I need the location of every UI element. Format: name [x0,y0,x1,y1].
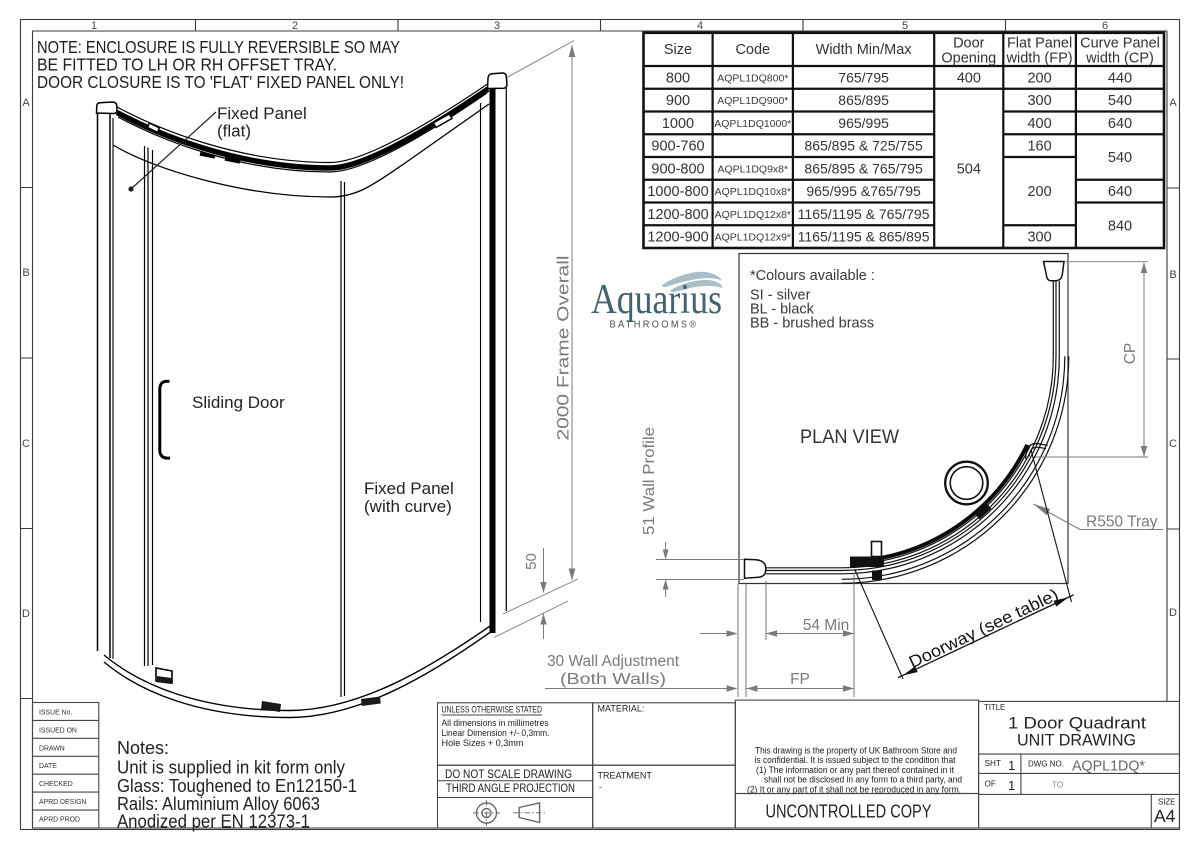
svg-text:Curve Panel: Curve Panel [1080,36,1160,52]
svg-text:TREATMENT: TREATMENT [598,771,653,781]
svg-text:MATERIAL:: MATERIAL: [598,704,645,714]
svg-text:1000-800: 1000-800 [647,184,708,200]
svg-text:800: 800 [666,70,690,86]
svg-text:840: 840 [1108,218,1132,234]
svg-text:OF: OF [985,780,996,789]
svg-text:51 Wall Profile: 51 Wall Profile [641,427,658,535]
svg-text:ISSUED ON: ISSUED ON [39,727,77,734]
svg-text:2: 2 [292,20,298,32]
svg-text:UNCONTROLLED COPY: UNCONTROLLED COPY [766,801,932,822]
svg-text:SHT: SHT [985,759,1001,768]
svg-text:A4: A4 [1154,806,1176,826]
svg-text:CHECKED: CHECKED [39,781,73,788]
svg-text:3: 3 [494,20,500,32]
svg-text:AQPL1DQ900*: AQPL1DQ900* [717,95,788,107]
svg-text:CP: CP [1122,343,1139,365]
svg-text:DATE: DATE [39,763,57,770]
svg-text:APRD DESIGN: APRD DESIGN [39,799,87,806]
svg-text:AQPL1DQ12x8*: AQPL1DQ12x8* [715,209,791,221]
svg-text:1200-800: 1200-800 [647,207,708,223]
svg-text:B: B [1169,269,1176,281]
svg-text:TO: TO [1052,779,1064,789]
svg-text:Fixed Panel: Fixed Panel [217,104,307,123]
svg-text:300: 300 [1027,93,1051,109]
svg-text:(1) The information or any par: (1) The information or any part thereof … [756,765,954,775]
svg-text:5: 5 [902,20,908,32]
svg-text:FP: FP [790,671,810,688]
svg-text:B: B [22,267,29,279]
svg-text:C: C [22,438,30,450]
svg-text:AQPL1DQ1000*: AQPL1DQ1000* [714,118,791,130]
svg-text:UNIT DRAWING: UNIT DRAWING [1017,732,1136,750]
svg-text:ISSUE No.: ISSUE No. [39,710,72,717]
svg-text:(with curve): (with curve) [364,497,452,516]
svg-text:1165/1195 & 865/895: 1165/1195 & 865/895 [798,229,930,245]
svg-text:Flat Panel: Flat Panel [1007,36,1072,52]
svg-text:width (FP): width (FP) [1006,51,1073,67]
svg-text:BB - brushed brass: BB - brushed brass [750,316,874,332]
svg-text:640: 640 [1108,184,1132,200]
svg-text:160: 160 [1027,139,1051,155]
svg-text:400: 400 [957,70,981,86]
svg-text:(Both Walls): (Both Walls) [560,671,666,688]
svg-text:200: 200 [1027,70,1051,86]
svg-text:1: 1 [1008,758,1015,773]
svg-text:1165/1195 & 765/795: 1165/1195 & 765/795 [798,206,930,222]
svg-text:D: D [22,608,30,620]
svg-text:AQPL1DQ800*: AQPL1DQ800* [717,72,788,84]
svg-text:6: 6 [1102,20,1108,32]
svg-text:DRAWN: DRAWN [39,745,65,752]
svg-text:4: 4 [697,20,703,32]
svg-text:Unit is supplied in kit form o: Unit is supplied in kit form only [117,758,345,778]
svg-text:900: 900 [666,93,690,109]
svg-text:540: 540 [1108,150,1132,166]
svg-text:AQPL1DQ12x9*: AQPL1DQ12x9* [715,232,791,244]
svg-text:2000 Frame Overall: 2000 Frame Overall [555,256,573,441]
svg-text:900-760: 900-760 [651,139,704,155]
svg-text:Anodized per EN 12373-1: Anodized per EN 12373-1 [117,812,310,832]
svg-text:765/795: 765/795 [838,69,889,85]
svg-text:(flat): (flat) [217,122,251,141]
svg-text:504: 504 [957,161,981,177]
svg-text:Linear Dimension +/- 0,3mm.: Linear Dimension +/- 0,3mm. [442,728,550,738]
svg-text:Fixed Panel: Fixed Panel [364,479,454,498]
svg-text:R550 Tray: R550 Tray [1086,514,1158,531]
svg-text:BATHROOMS®: BATHROOMS® [610,319,699,331]
svg-text:A: A [22,97,30,109]
svg-text:Width Min/Max: Width Min/Max [816,42,913,58]
svg-text:DWG NO.: DWG NO. [1028,760,1064,769]
svg-text:54 Min: 54 Min [803,617,850,634]
svg-text:Glass: Toughened to En12150-1: Glass: Toughened to En12150-1 [117,776,357,796]
svg-text:AQPL1DQ9x8*: AQPL1DQ9x8* [717,163,788,175]
svg-text:Opening: Opening [941,51,996,67]
svg-text:1200-900: 1200-900 [647,230,708,246]
svg-text:200: 200 [1027,184,1051,200]
svg-text:APRD PROD: APRD PROD [39,817,80,824]
svg-text:width (CP): width (CP) [1085,51,1154,67]
svg-text:1000: 1000 [662,116,694,132]
svg-text:-: - [599,782,602,792]
svg-text:Size: Size [664,42,692,58]
svg-text:1: 1 [91,20,97,32]
svg-text:865/895 & 765/795: 865/895 & 765/795 [804,160,923,176]
svg-text:shall not be disclosed in any: shall not be disclosed in any form to a … [764,775,962,785]
svg-text:Aquarius: Aquarius [591,277,722,323]
svg-text:(2) It or any part of it shall: (2) It or any part of it shall not be re… [747,784,961,794]
svg-text:Door: Door [953,36,985,52]
svg-text:AQPL1DQ*: AQPL1DQ* [1072,759,1145,775]
svg-text:400: 400 [1027,116,1051,132]
svg-text:30 Wall Adjustment: 30 Wall Adjustment [547,653,680,670]
svg-text:50: 50 [523,553,540,570]
svg-text:965/995: 965/995 [838,115,889,131]
svg-text:AQPL1DQ10x8*: AQPL1DQ10x8* [715,186,791,198]
svg-text:D: D [1169,607,1177,619]
svg-text:540: 540 [1108,93,1132,109]
svg-text:TITLE: TITLE [984,703,1005,712]
svg-text:440: 440 [1108,70,1132,86]
svg-text:This drawing is the property o: This drawing is the property of UK Bathr… [755,746,957,756]
svg-text:A: A [1169,97,1177,109]
svg-text:Sliding Door: Sliding Door [192,393,285,412]
svg-text:Hole Sizes + 0,3mm: Hole Sizes + 0,3mm [442,738,524,748]
svg-text:965/995 &765/795: 965/995 &765/795 [806,183,921,199]
svg-text:DOOR CLOSURE IS TO 'FLAT' FIXE: DOOR CLOSURE IS TO 'FLAT' FIXED PANEL ON… [37,72,404,92]
svg-text:All dimensions in millimetres: All dimensions in millimetres [442,718,550,728]
svg-text:865/895 & 725/755: 865/895 & 725/755 [804,138,923,154]
svg-text:Notes:: Notes: [117,738,169,758]
svg-text:PLAN VIEW: PLAN VIEW [800,426,900,448]
svg-text:DO NOT SCALE DRAWING: DO NOT SCALE DRAWING [445,767,572,781]
svg-text:1 Door Quadrant: 1 Door Quadrant [1008,715,1146,733]
svg-text:is confidential. It is issued: is confidential. It is issued subject to… [755,755,957,765]
svg-text:THIRD ANGLE PROJECTION: THIRD ANGLE PROJECTION [446,781,575,795]
svg-text:*Colours available :: *Colours available : [750,268,875,284]
svg-text:640: 640 [1108,116,1132,132]
svg-text:1: 1 [1008,778,1015,793]
svg-text:Code: Code [735,42,770,58]
svg-text:C: C [1169,438,1177,450]
svg-text:300: 300 [1027,230,1051,246]
svg-text:UNLESS OTHERWISE STATED: UNLESS OTHERWISE STATED [442,705,543,715]
svg-text:900-800: 900-800 [651,161,704,177]
svg-text:865/895: 865/895 [838,92,889,108]
